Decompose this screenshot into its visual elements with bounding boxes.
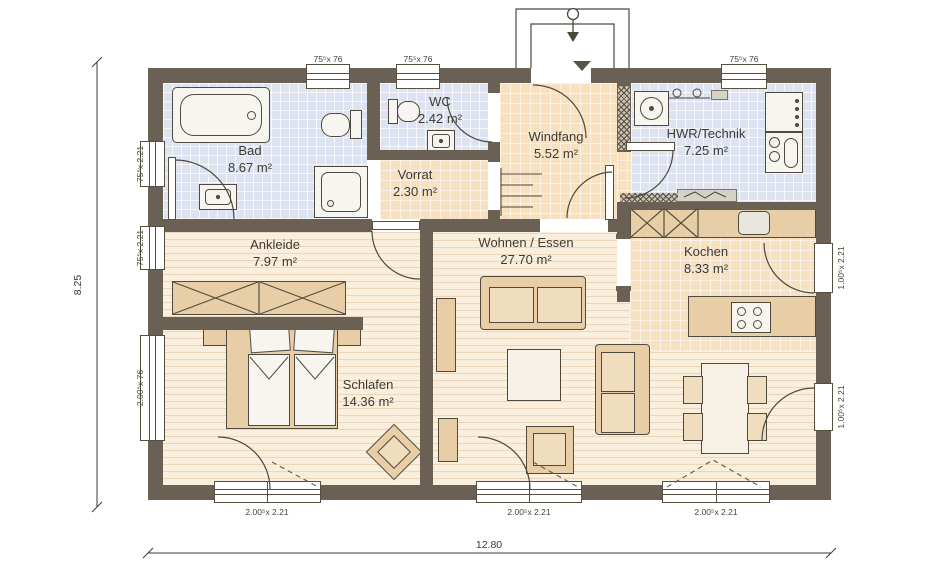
bad-toilet-tank	[350, 110, 362, 139]
boiler-valve-1	[769, 137, 780, 148]
sofa-v-cushion-2	[601, 393, 635, 433]
window-dimension-label: 2.00⁵x 2.21	[479, 507, 579, 517]
heat-pump-icon	[765, 92, 803, 132]
sideboard-2	[438, 418, 458, 462]
bad-door-leaf	[168, 157, 176, 220]
room-label-vorrat: Vorrat 2.30 m²	[360, 167, 470, 200]
kitchen-counter-top	[630, 208, 816, 238]
room-label-bad: Bad 8.67 m²	[190, 143, 310, 176]
window-dimension-label: 75⁵x 76	[288, 54, 368, 64]
overall-width-label: 12.80	[459, 539, 519, 551]
window-top-hwr	[721, 64, 767, 89]
windfang-wohnen-door-leaf	[605, 165, 614, 220]
dining-table	[701, 363, 749, 454]
room-name: Wohnen / Essen	[470, 235, 582, 252]
room-area: 7.97 m²	[220, 254, 330, 271]
room-name: Bad	[190, 143, 310, 160]
room-label-wohnen: Wohnen / Essen 27.70 m²	[470, 235, 582, 268]
door-dimension-label: 1.00⁵x 2.21	[836, 377, 846, 437]
room-label-kochen: Kochen 8.33 m²	[651, 244, 761, 277]
door-right-kochen	[814, 243, 833, 293]
burner-3	[737, 320, 746, 329]
kitchen-sink-icon	[738, 211, 770, 235]
overall-height-label: 8.25	[72, 255, 84, 315]
room-area: 2.42 m²	[385, 111, 495, 128]
burner-1	[737, 307, 746, 316]
wall-bad-bottom	[148, 219, 488, 232]
window-dimension-label: 75⁵x 76	[378, 54, 458, 64]
wall-hwr-bottom	[617, 202, 816, 210]
dining-chair-3	[747, 376, 767, 404]
ankleide-door-leaf	[372, 221, 420, 230]
entrance-porch	[516, 9, 629, 68]
window-dimension-label: 75⁵x 2.21	[135, 218, 145, 278]
french-window-wohnen	[476, 481, 582, 503]
room-name: Vorrat	[360, 167, 470, 184]
room-name: Ankleide	[220, 237, 330, 254]
window-dimension-label: 2.00⁵x 2.21	[217, 507, 317, 517]
wall-bad-wc	[367, 68, 380, 160]
entrance-arrow-icon	[567, 9, 591, 72]
burner-4	[753, 320, 762, 329]
window-top-wc	[396, 64, 440, 89]
front-door-opening	[531, 68, 591, 83]
boiler-valve-2	[769, 151, 780, 162]
insulation-hatch-horizontal	[620, 193, 678, 202]
window-dimension-label: 2.00⁵x 76	[135, 358, 145, 418]
french-window-essen	[662, 481, 770, 503]
coffee-table	[507, 349, 561, 401]
bad-sink-basin	[205, 189, 231, 205]
room-name: Schlafen	[318, 377, 418, 394]
room-label-hwr: HWR/Technik 7.25 m²	[650, 126, 762, 159]
window-dimension-label: 2.00⁵x 2.21	[666, 507, 766, 517]
room-name: HWR/Technik	[650, 126, 762, 143]
wc-sink-basin	[432, 134, 450, 148]
bad-toilet-bowl	[321, 113, 350, 137]
bathtub-drain	[247, 111, 256, 120]
room-label-windfang: Windfang 5.52 m²	[501, 129, 611, 162]
windfang-wohnen-opening	[540, 219, 608, 232]
pipe-manifold-icon	[711, 90, 728, 100]
sofa-v-cushion-1	[601, 352, 635, 392]
vorrat-door-opening	[488, 162, 500, 210]
room-area: 8.33 m²	[651, 261, 761, 278]
cooktop-icon	[731, 302, 771, 333]
room-name: Kochen	[651, 244, 761, 261]
dining-chair-1	[683, 376, 703, 404]
dining-chair-4	[747, 413, 767, 441]
window-dimension-label: 75⁵x 2.21	[135, 134, 145, 194]
sofa-cushion-1	[489, 287, 534, 323]
shower-tray	[321, 172, 361, 212]
pass-post-top	[616, 234, 631, 239]
shower-drain	[327, 200, 334, 207]
insulation-hatch-vertical	[618, 86, 630, 150]
room-area: 14.36 m²	[318, 394, 418, 411]
mattress-left	[248, 354, 290, 426]
kochen-pass-opening	[617, 238, 630, 286]
room-area: 5.52 m²	[501, 146, 611, 163]
door-dimension-label: 1.00⁵x 2.21	[836, 238, 846, 298]
window-dimension-label: 75⁵x 76	[704, 54, 784, 64]
wardrobe	[172, 281, 346, 315]
room-area: 7.25 m²	[650, 143, 762, 160]
door-right-wohnen	[814, 383, 833, 431]
room-label-ankleide: Ankleide 7.97 m²	[220, 237, 330, 270]
french-window-schlafen	[214, 481, 321, 503]
armchair-seat	[533, 433, 566, 466]
boiler-tank	[784, 138, 798, 168]
floor-plan: Bad 8.67 m² WC 2.42 m² Vorrat 2.30 m² Wi…	[0, 0, 940, 578]
burner-2	[753, 307, 762, 316]
room-label-schlafen: Schlafen 14.36 m²	[318, 377, 418, 410]
room-area: 8.67 m²	[190, 160, 310, 177]
hwr-shelf	[677, 189, 737, 202]
window-top-bad	[306, 64, 350, 89]
washing-machine-dot	[649, 106, 654, 111]
pass-post-bottom	[616, 286, 631, 291]
sideboard-1	[436, 298, 456, 372]
dining-chair-2	[683, 413, 703, 441]
sofa-cushion-2	[537, 287, 582, 323]
wall-wc-vorrat	[367, 150, 500, 160]
room-label-wc: WC 2.42 m²	[385, 94, 495, 127]
wall-wohnen-left	[420, 219, 433, 485]
room-area: 27.70 m²	[470, 252, 582, 269]
wall-ankleide-schlafen	[148, 317, 363, 330]
room-area: 2.30 m²	[360, 184, 470, 201]
room-name: WC	[385, 94, 495, 111]
room-name: Windfang	[501, 129, 611, 146]
